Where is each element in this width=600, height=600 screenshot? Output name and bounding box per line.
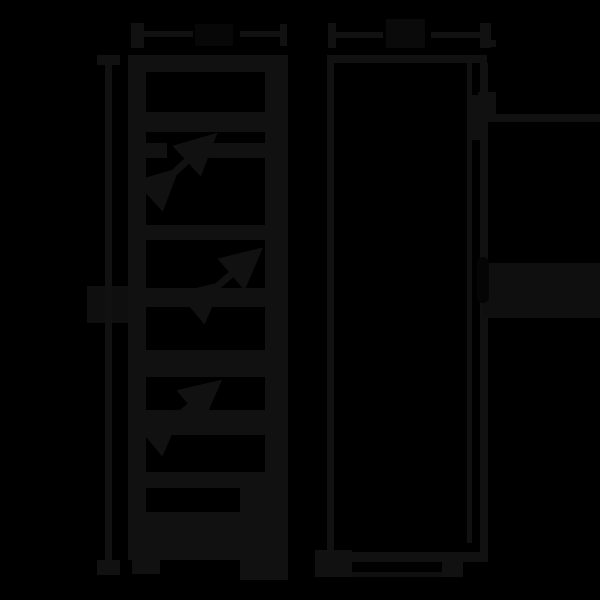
diagram-canvas xyxy=(0,0,600,600)
shelf-adjust-arrow-1 xyxy=(164,147,202,182)
shelf-adjust-arrow-2 xyxy=(207,261,247,295)
shelf-adjust-arrow-3 xyxy=(165,393,206,427)
shelf-arrows-layer xyxy=(0,0,600,600)
